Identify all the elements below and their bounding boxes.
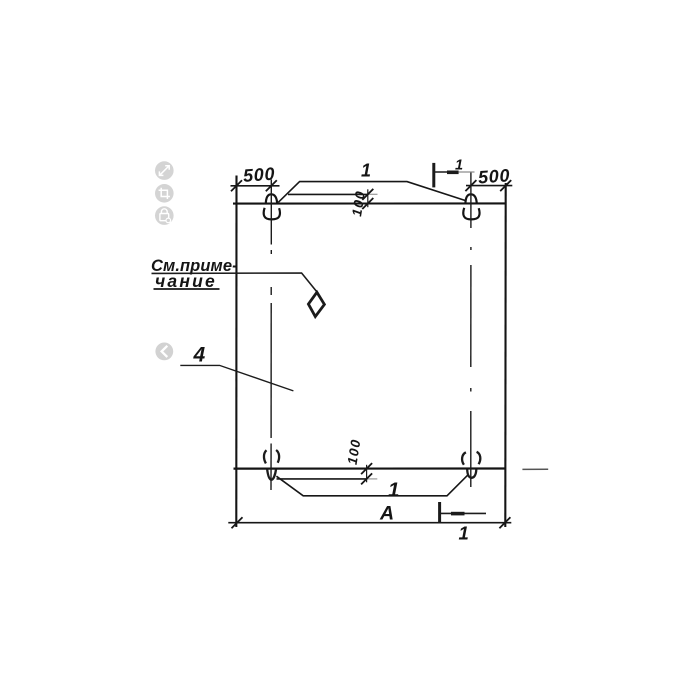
svg-text:1: 1: [455, 158, 463, 174]
svg-text:4: 4: [193, 344, 206, 367]
svg-text:1: 1: [361, 161, 371, 181]
svg-text:А: А: [379, 503, 394, 525]
svg-text:100: 100: [345, 438, 364, 466]
svg-text:500: 500: [477, 165, 510, 187]
svg-text:1: 1: [459, 523, 469, 544]
svg-text:100: 100: [349, 189, 368, 217]
svg-text:1: 1: [388, 479, 399, 502]
